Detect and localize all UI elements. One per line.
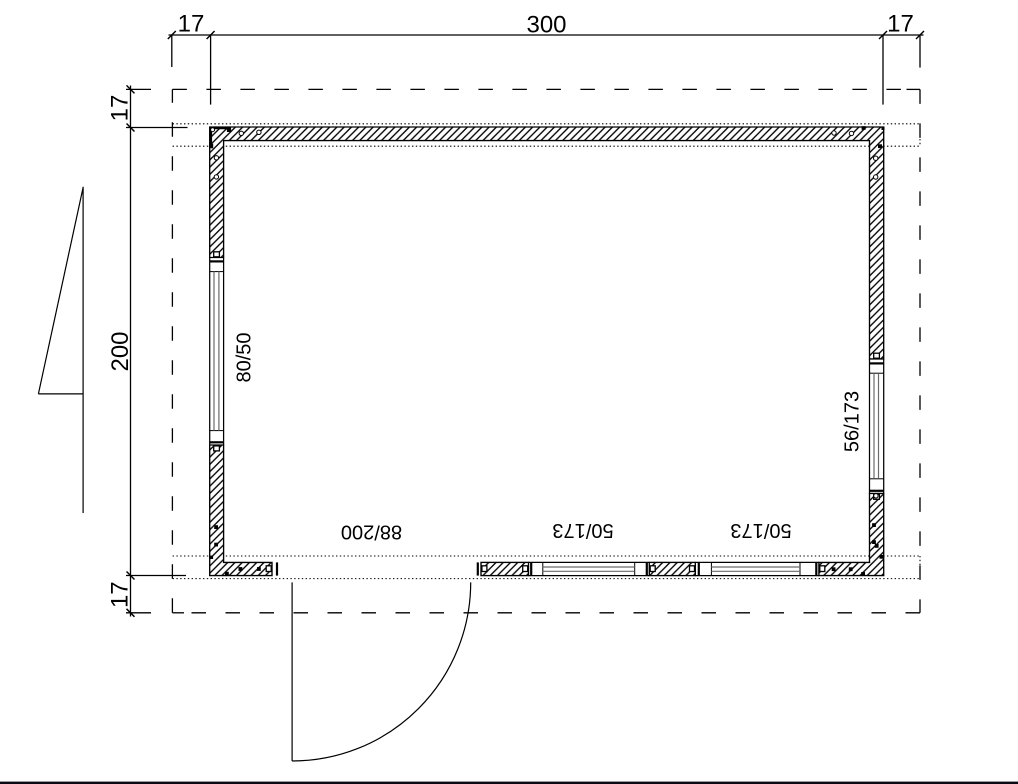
svg-text:200: 200	[107, 331, 134, 371]
svg-text:17: 17	[107, 581, 134, 608]
svg-text:17: 17	[178, 11, 205, 38]
svg-text:17: 17	[887, 11, 914, 38]
svg-text:17: 17	[107, 95, 134, 122]
svg-text:50/173: 50/173	[730, 519, 791, 541]
svg-text:300: 300	[526, 12, 566, 39]
svg-text:80/50: 80/50	[234, 332, 256, 382]
svg-text:56/173: 56/173	[842, 391, 864, 452]
svg-text:88/200: 88/200	[341, 520, 402, 542]
svg-text:50/173: 50/173	[552, 519, 613, 541]
